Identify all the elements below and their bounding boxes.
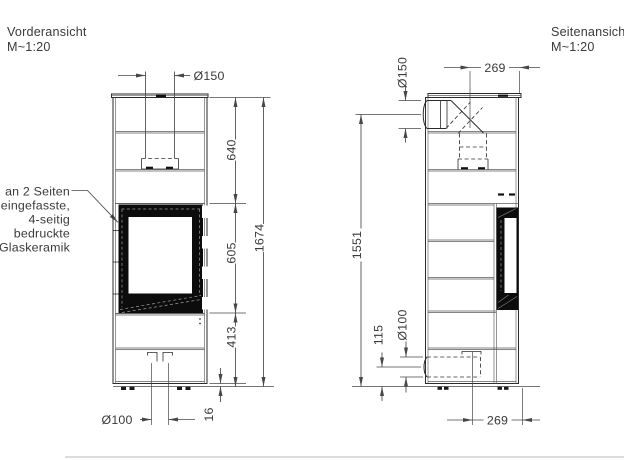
side-view-title: Seitenansicht (551, 25, 624, 39)
foot (130, 387, 135, 390)
foot (177, 387, 182, 390)
dim-flue-diameter: Ø150 (194, 69, 225, 83)
side-view: Seitenansicht M~1:20 (350, 25, 624, 427)
dim-total-height: 1674 (253, 224, 267, 252)
elbow-miter-hidden (446, 102, 471, 129)
foot (121, 387, 126, 390)
foot (498, 387, 503, 390)
glass-note-line5: Glaskeramik (0, 241, 71, 255)
dim-upper-height: 640 (225, 139, 239, 160)
screw-dot (199, 323, 201, 325)
dim-flue-depth: 269 (484, 61, 505, 75)
side-glass-window (505, 218, 517, 293)
dim-flue-height: 1551 (350, 231, 364, 259)
foot (438, 387, 443, 390)
side-view-header: Seitenansicht M~1:20 (551, 25, 624, 54)
glass-window (129, 217, 193, 294)
front-view-header: Vorderansicht M~1:20 (7, 25, 87, 54)
side-glass-panel (497, 208, 519, 311)
leader-line (72, 191, 118, 223)
side-air-inlet (424, 352, 481, 426)
glass-note-line4: bedruckte (14, 227, 70, 241)
air-duct-bracket (462, 352, 481, 355)
air-stub-bracket (148, 353, 158, 362)
stove-drawing: Vorderansicht M~1:20 an 2 Seiten eingefa… (0, 0, 624, 460)
technical-drawing-page: Vorderansicht M~1:20 an 2 Seiten eingefa… (0, 0, 624, 460)
dim-side-flue-diameter: Ø150 (396, 57, 410, 88)
side-view-scale: M~1:20 (551, 40, 595, 54)
front-view-scale: M~1:20 (7, 40, 51, 54)
glass-annotation: an 2 Seiten eingefasste, 4-seitig bedruc… (0, 185, 118, 255)
front-glass-door (119, 205, 211, 325)
glass-note-line2: eingefasste, (1, 199, 70, 213)
foot (444, 387, 449, 390)
hinge-block (202, 297, 211, 310)
side-flue-pipe (423, 101, 488, 170)
front-flue-stub (142, 72, 179, 170)
dim-air-height: 115 (372, 325, 386, 345)
air-stub-bracket (163, 353, 173, 362)
side-base (352, 387, 540, 390)
glass-note-line3: 4-seitig (28, 213, 70, 227)
screw-dot (199, 318, 201, 320)
elbow-edge (451, 101, 484, 134)
dim-air-diameter: Ø100 (102, 413, 133, 427)
dim-floor-clearance: 16 (202, 407, 216, 421)
front-view-title: Vorderansicht (7, 25, 87, 39)
foot (504, 387, 509, 390)
glass-note-line1: an 2 Seiten (5, 185, 70, 199)
front-view: Vorderansicht M~1:20 an 2 Seiten eingefa… (0, 25, 274, 427)
dim-lower-height: 413 (225, 326, 239, 347)
hinge-block (202, 206, 211, 219)
dim-side-air-diameter: Ø100 (396, 309, 410, 340)
hinge-block (202, 267, 211, 280)
foot (186, 387, 191, 390)
dim-glass-height: 605 (225, 242, 239, 263)
hinge-block (202, 236, 211, 249)
dim-air-depth: 269 (487, 413, 508, 427)
